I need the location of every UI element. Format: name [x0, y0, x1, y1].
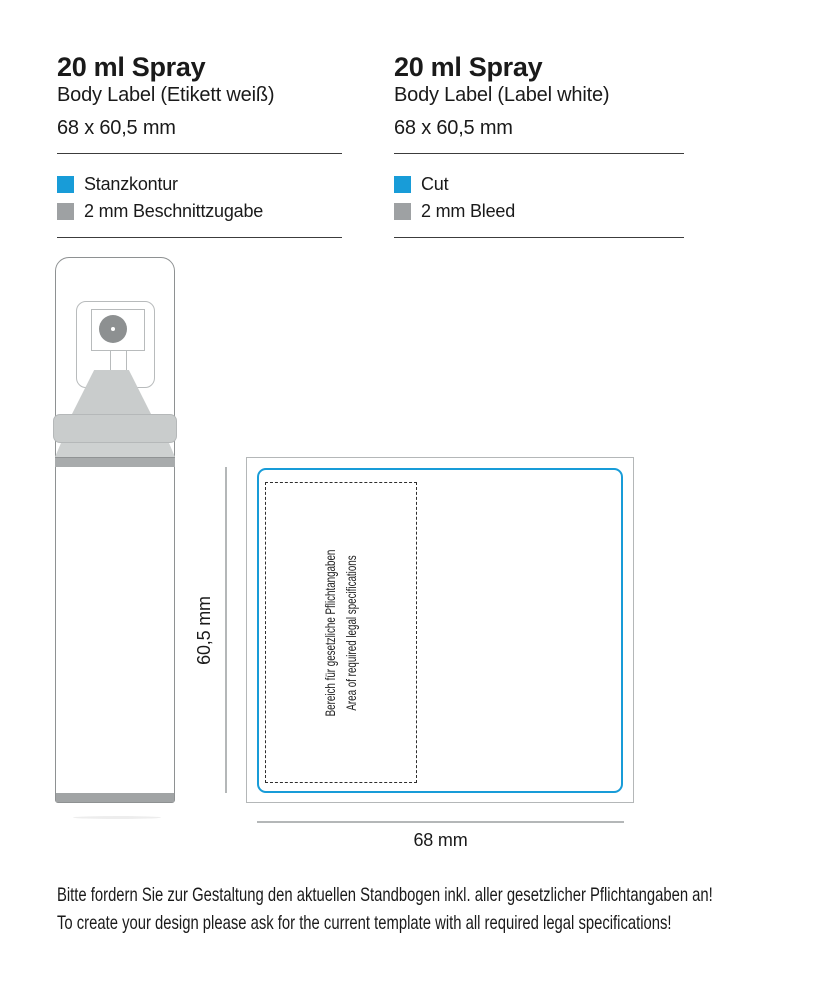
label-size: 68 x 60,5 mm	[57, 115, 342, 141]
height-dimension: 60,5 mm	[186, 467, 222, 793]
footer-note: Bitte fordern Sie zur Gestaltung den akt…	[57, 881, 749, 937]
legend: Stanzkontur 2 mm Beschnittzugabe	[57, 176, 342, 220]
legend-row-cut: Stanzkontur	[57, 176, 342, 193]
legal-area-caption: Bereich für gesetzliche Pflichtangaben A…	[320, 549, 362, 716]
footer-note-en: To create your design please ask for the…	[57, 909, 749, 937]
legend-label-cut: Stanzkontur	[84, 174, 178, 195]
width-dimension-line	[257, 821, 624, 823]
label-size: 68 x 60,5 mm	[394, 115, 684, 141]
legend-row-bleed: 2 mm Bleed	[394, 203, 684, 220]
legend-row-bleed: 2 mm Beschnittzugabe	[57, 203, 342, 220]
product-title: 20 ml Spray	[57, 52, 342, 82]
product-title: 20 ml Spray	[394, 52, 684, 82]
legend-label-bleed: 2 mm Beschnittzugabe	[84, 201, 263, 222]
cut-color-swatch-icon	[394, 176, 411, 193]
bleed-color-swatch-icon	[57, 203, 74, 220]
legend-row-cut: Cut	[394, 176, 684, 193]
legend-label-bleed: 2 mm Bleed	[421, 201, 515, 222]
divider	[394, 153, 684, 154]
height-dimension-line	[225, 467, 227, 793]
pump-ferrule	[53, 414, 177, 443]
legal-area-caption-en: Area of required legal specifications	[341, 549, 362, 716]
bottle-shadow	[73, 816, 161, 819]
divider	[57, 237, 342, 238]
height-dimension-label: 60,5 mm	[194, 596, 215, 665]
bleed-color-swatch-icon	[394, 203, 411, 220]
header-column-german: 20 ml Spray Body Label (Etikett weiß) 68…	[57, 52, 342, 238]
ferrule-skirt	[55, 443, 175, 457]
legend: Cut 2 mm Bleed	[394, 176, 684, 220]
width-dimension-label: 68 mm	[257, 830, 624, 851]
header-column-english: 20 ml Spray Body Label (Label white) 68 …	[394, 52, 684, 238]
footer-note-de: Bitte fordern Sie zur Gestaltung den akt…	[57, 881, 749, 909]
template-sheet-page: 20 ml Spray Body Label (Etikett weiß) 68…	[0, 0, 822, 1000]
product-subtitle: Body Label (Label white)	[394, 82, 684, 108]
divider	[394, 237, 684, 238]
legend-label-cut: Cut	[421, 174, 448, 195]
divider	[57, 153, 342, 154]
bottle-bottom-band	[56, 793, 174, 802]
legal-specifications-area: Bereich für gesetzliche Pflichtangaben A…	[265, 482, 417, 783]
legal-area-caption-de: Bereich für gesetzliche Pflichtangaben	[320, 549, 341, 716]
cut-color-swatch-icon	[57, 176, 74, 193]
nozzle-orifice	[99, 315, 127, 343]
spray-bottle-illustration	[55, 257, 175, 803]
product-subtitle: Body Label (Etikett weiß)	[57, 82, 342, 108]
crimp-band	[55, 457, 175, 467]
valve-stem	[110, 351, 127, 372]
